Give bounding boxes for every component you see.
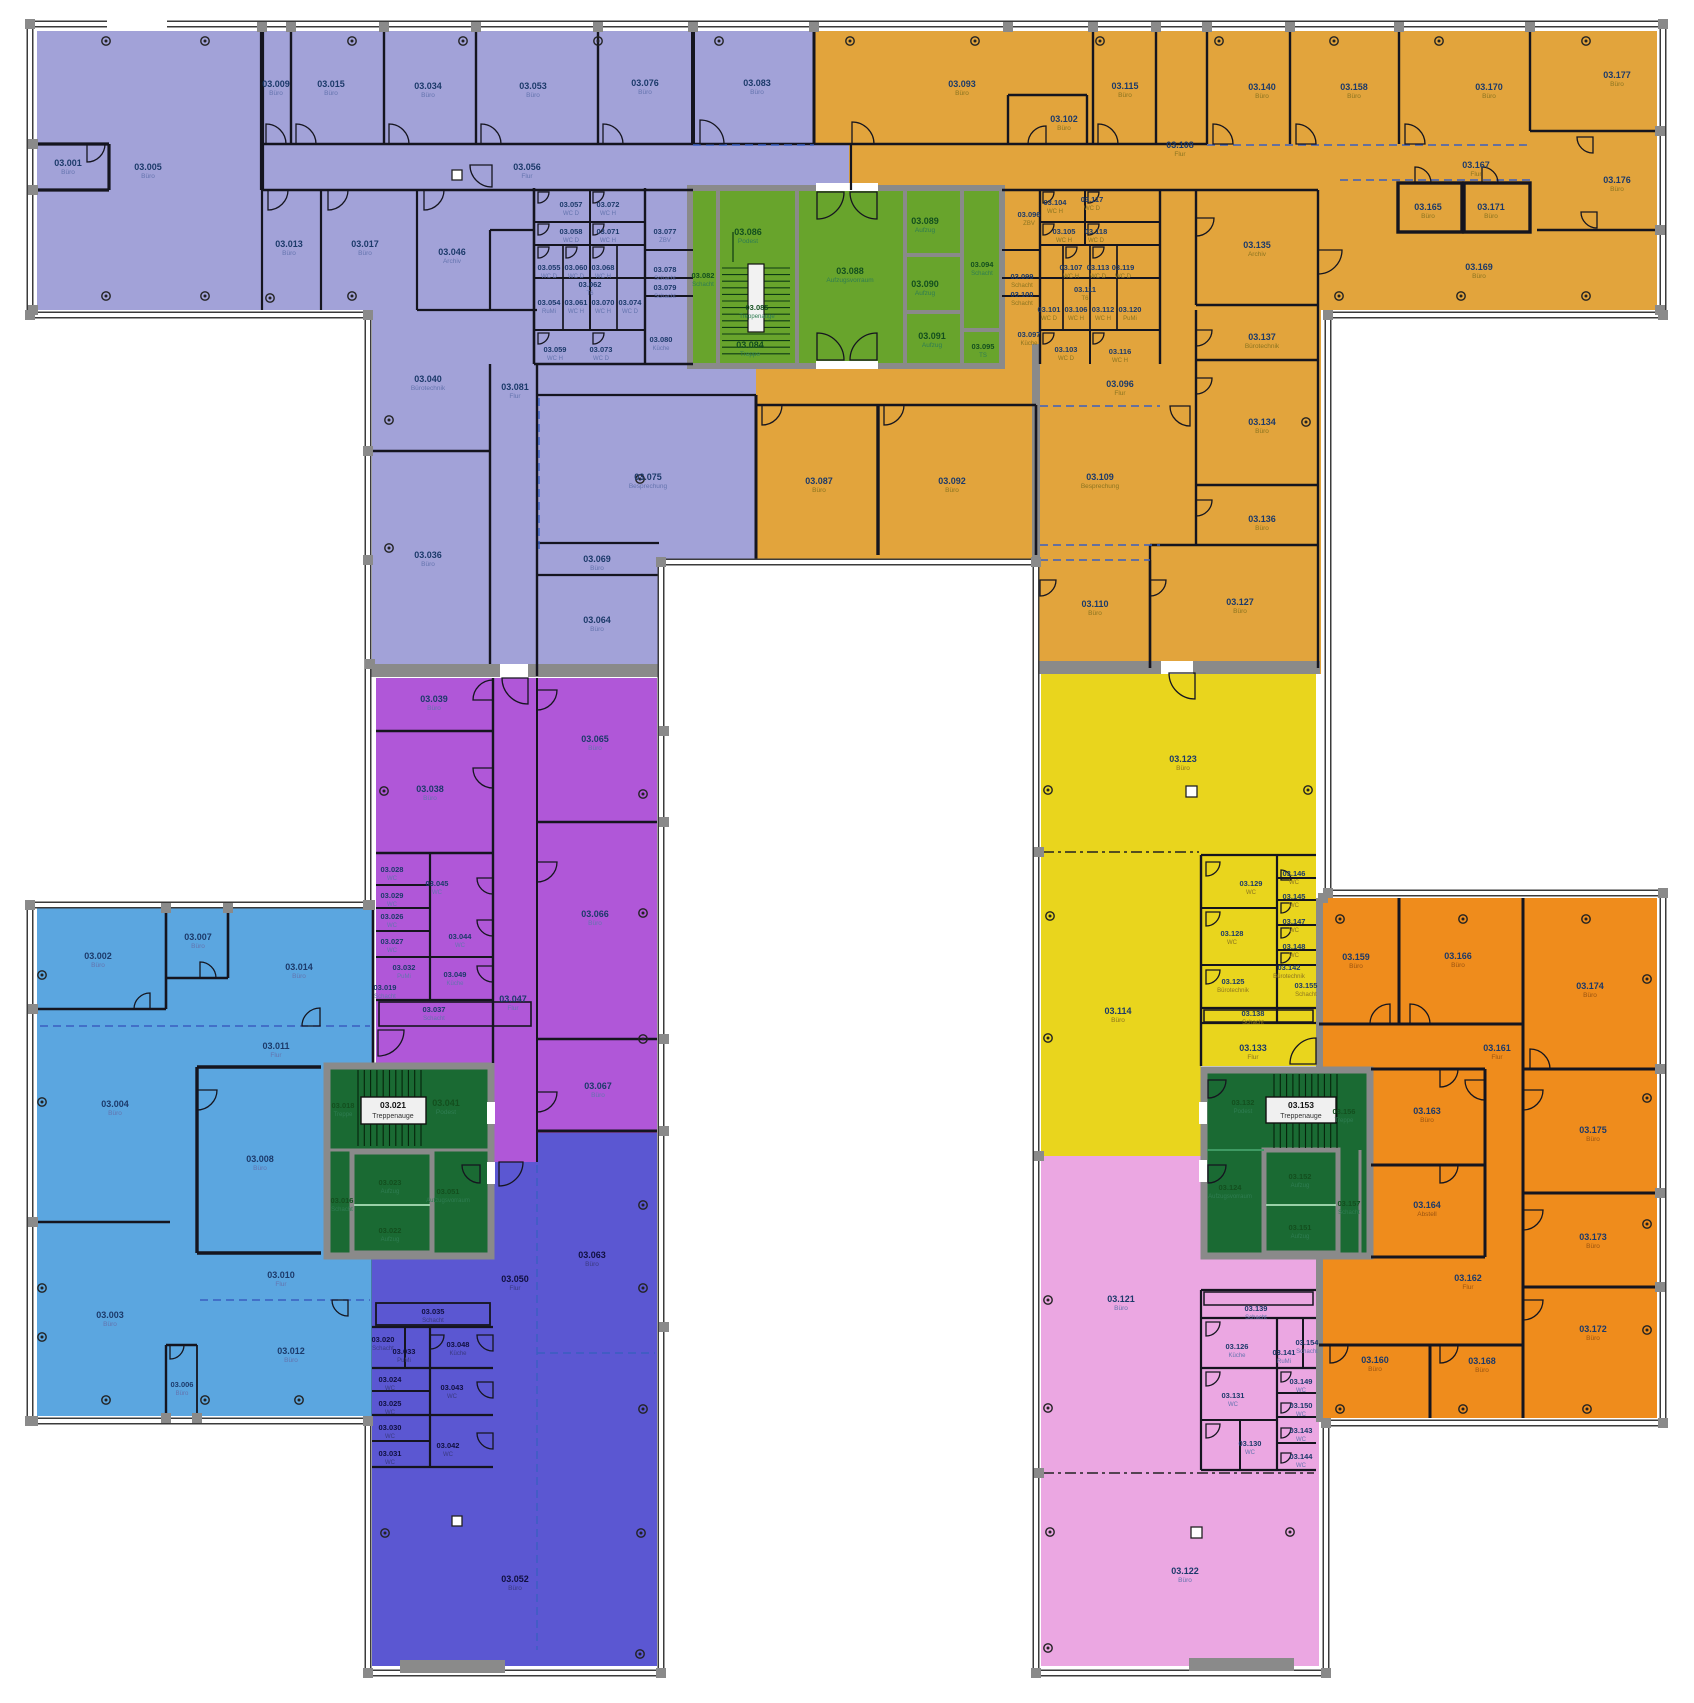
- svg-text:Schacht: Schacht: [1011, 301, 1033, 307]
- svg-text:Aufzug: Aufzug: [922, 342, 943, 349]
- svg-text:WC: WC: [1246, 890, 1257, 896]
- svg-text:Büro: Büro: [1178, 1577, 1192, 1584]
- svg-text:Büro: Büro: [526, 92, 540, 99]
- svg-text:WC H: WC H: [547, 356, 563, 362]
- svg-text:03.086: 03.086: [734, 227, 762, 237]
- svg-text:Büro: Büro: [955, 90, 969, 97]
- svg-text:Büro: Büro: [1482, 93, 1496, 100]
- svg-text:03.075: 03.075: [634, 472, 662, 482]
- svg-text:03.057: 03.057: [560, 200, 583, 209]
- svg-text:Büro: Büro: [1421, 213, 1435, 220]
- svg-text:WC D: WC D: [1041, 316, 1058, 322]
- svg-text:03.061: 03.061: [565, 298, 588, 307]
- svg-text:03.050: 03.050: [501, 1274, 529, 1284]
- svg-text:ZBV: ZBV: [1023, 221, 1035, 227]
- svg-text:Bürotechnik: Bürotechnik: [1217, 988, 1250, 994]
- svg-text:WC D: WC D: [541, 274, 558, 280]
- svg-text:RuMi: RuMi: [542, 309, 556, 315]
- svg-text:Flur: Flur: [521, 173, 533, 180]
- svg-text:03.115: 03.115: [1111, 81, 1138, 91]
- svg-text:03.126: 03.126: [1226, 1342, 1249, 1351]
- svg-text:WC H: WC H: [1068, 316, 1084, 322]
- svg-text:03.048: 03.048: [447, 1340, 470, 1349]
- svg-text:WC: WC: [387, 948, 398, 954]
- svg-text:Archiv: Archiv: [443, 258, 462, 265]
- svg-text:Büro: Büro: [141, 173, 155, 180]
- svg-text:03.100: 03.100: [1011, 290, 1034, 299]
- svg-text:Aufzug: Aufzug: [1291, 1234, 1310, 1240]
- svg-text:Büro: Büro: [1472, 273, 1486, 280]
- svg-text:Büro: Büro: [585, 1261, 599, 1268]
- svg-text:Büro: Büro: [61, 169, 75, 176]
- svg-text:Büro: Büro: [1233, 608, 1247, 615]
- svg-text:Büro: Büro: [588, 745, 602, 752]
- svg-text:03.174: 03.174: [1576, 981, 1604, 991]
- svg-text:03.169: 03.169: [1465, 262, 1493, 272]
- svg-text:03.084: 03.084: [736, 340, 764, 350]
- svg-text:Abstell: Abstell: [1417, 1211, 1437, 1218]
- svg-text:03.114: 03.114: [1104, 1006, 1131, 1016]
- svg-text:03.096: 03.096: [1018, 210, 1041, 219]
- svg-text:03.139: 03.139: [1245, 1304, 1268, 1313]
- svg-text:03.101: 03.101: [1038, 305, 1061, 314]
- svg-text:Flur: Flur: [275, 1281, 287, 1288]
- svg-text:WC H: WC H: [1063, 274, 1079, 280]
- svg-text:WC H: WC H: [1047, 209, 1063, 215]
- svg-text:RuMi: RuMi: [1277, 1359, 1291, 1365]
- svg-text:Küche: Küche: [446, 981, 464, 987]
- svg-text:03.023: 03.023: [379, 1178, 402, 1187]
- svg-text:03.026: 03.026: [381, 912, 404, 921]
- svg-text:03.129: 03.129: [1240, 879, 1263, 888]
- svg-text:WC D: WC D: [1084, 206, 1101, 212]
- svg-text:03.177: 03.177: [1603, 70, 1631, 80]
- svg-text:03.077: 03.077: [654, 227, 677, 236]
- svg-text:Büro: Büro: [945, 487, 959, 494]
- svg-text:WC D: WC D: [563, 211, 580, 217]
- svg-text:03.028: 03.028: [381, 865, 404, 874]
- svg-text:Büro: Büro: [282, 250, 296, 257]
- svg-text:03.161: 03.161: [1483, 1043, 1511, 1053]
- svg-text:03.053: 03.053: [519, 81, 547, 91]
- svg-text:03.145: 03.145: [1283, 892, 1306, 901]
- svg-text:03.065: 03.065: [581, 734, 609, 744]
- svg-text:T6: T6: [586, 291, 594, 297]
- svg-text:WC: WC: [455, 943, 466, 949]
- svg-text:03.153: 03.153: [1288, 1100, 1314, 1110]
- svg-text:PuMi: PuMi: [397, 974, 411, 980]
- svg-text:03.018: 03.018: [332, 1101, 355, 1110]
- svg-text:03.002: 03.002: [84, 951, 112, 961]
- svg-text:WC D: WC D: [1058, 356, 1075, 362]
- svg-text:03.158: 03.158: [1340, 82, 1368, 92]
- svg-text:WC: WC: [1228, 1402, 1239, 1408]
- svg-text:Büro: Büro: [812, 487, 826, 494]
- svg-text:Büro: Büro: [591, 1092, 605, 1099]
- svg-text:03.060: 03.060: [565, 263, 588, 272]
- svg-text:03.117: 03.117: [1081, 195, 1104, 204]
- svg-text:03.133: 03.133: [1239, 1043, 1267, 1053]
- svg-text:WC H: WC H: [568, 309, 584, 315]
- svg-text:03.014: 03.014: [285, 962, 313, 972]
- svg-text:Büro: Büro: [191, 943, 205, 950]
- svg-text:03.034: 03.034: [414, 81, 442, 91]
- svg-text:03.024: 03.024: [379, 1375, 403, 1384]
- svg-text:Flur: Flur: [507, 1005, 519, 1012]
- svg-text:03.113: 03.113: [1087, 263, 1110, 272]
- svg-text:Schacht: Schacht: [1011, 283, 1033, 289]
- svg-text:Treppenauge: Treppenauge: [1280, 1113, 1321, 1120]
- svg-text:03.064: 03.064: [583, 615, 611, 625]
- svg-text:03.070: 03.070: [592, 298, 615, 307]
- svg-text:WC H: WC H: [1095, 316, 1111, 322]
- svg-text:Büro: Büro: [590, 626, 604, 633]
- svg-text:03.096: 03.096: [1106, 379, 1134, 389]
- svg-text:03.123: 03.123: [1169, 754, 1197, 764]
- svg-text:03.135: 03.135: [1243, 240, 1271, 250]
- svg-text:03.015: 03.015: [317, 79, 345, 89]
- svg-text:03.031: 03.031: [379, 1449, 402, 1458]
- svg-text:03.091: 03.091: [918, 331, 946, 341]
- svg-text:Büro: Büro: [427, 705, 441, 712]
- svg-text:03.020: 03.020: [372, 1335, 395, 1344]
- svg-text:Büro: Büro: [1475, 1367, 1489, 1374]
- svg-text:Büro: Büro: [1255, 525, 1269, 532]
- svg-text:03.038: 03.038: [416, 784, 444, 794]
- svg-text:03.120: 03.120: [1119, 305, 1142, 314]
- svg-text:03.004: 03.004: [101, 1099, 129, 1109]
- svg-text:03.150: 03.150: [1290, 1401, 1313, 1410]
- svg-text:03.021: 03.021: [380, 1100, 406, 1110]
- svg-text:Treppe: Treppe: [1335, 1118, 1354, 1124]
- svg-text:WC: WC: [432, 890, 443, 896]
- svg-text:03.094: 03.094: [971, 260, 995, 269]
- svg-text:03.125: 03.125: [1222, 977, 1245, 986]
- svg-text:Büro: Büro: [91, 962, 105, 969]
- svg-text:03.003: 03.003: [96, 1310, 124, 1320]
- svg-text:Schacht: Schacht: [423, 1016, 445, 1022]
- svg-text:WC: WC: [1289, 880, 1300, 886]
- svg-text:Büro: Büro: [1114, 1305, 1128, 1312]
- svg-text:03.116: 03.116: [1109, 347, 1132, 356]
- svg-text:ZBV: ZBV: [659, 238, 671, 244]
- svg-text:03.103: 03.103: [1055, 345, 1078, 354]
- svg-text:03.136: 03.136: [1248, 514, 1276, 524]
- svg-text:Schacht: Schacht: [1245, 1315, 1267, 1321]
- svg-text:Schacht: Schacht: [422, 1318, 444, 1324]
- svg-text:03.006: 03.006: [171, 1380, 194, 1389]
- svg-text:03.172: 03.172: [1579, 1324, 1607, 1334]
- svg-text:Besprechung: Besprechung: [1081, 483, 1120, 490]
- svg-text:Bürotechnik: Bürotechnik: [411, 385, 446, 392]
- svg-text:03.167: 03.167: [1462, 160, 1490, 170]
- svg-text:Schacht: Schacht: [971, 271, 993, 277]
- svg-text:Flur: Flur: [1247, 1054, 1259, 1061]
- svg-text:Büro: Büro: [1583, 992, 1597, 999]
- svg-text:03.176: 03.176: [1603, 175, 1631, 185]
- svg-text:03.088: 03.088: [836, 266, 864, 276]
- svg-text:WC: WC: [387, 902, 398, 908]
- svg-text:Büro: Büro: [324, 90, 338, 97]
- svg-text:03.035: 03.035: [422, 1307, 445, 1316]
- svg-text:Aufzug: Aufzug: [915, 227, 936, 234]
- svg-text:WC H: WC H: [1056, 238, 1072, 244]
- svg-text:03.085: 03.085: [746, 303, 769, 312]
- svg-text:Treppe: Treppe: [740, 351, 761, 358]
- svg-text:03.170: 03.170: [1475, 82, 1503, 92]
- svg-text:Büro: Büro: [750, 89, 764, 96]
- svg-text:Büro: Büro: [638, 89, 652, 96]
- svg-text:Flur: Flur: [1491, 1054, 1503, 1061]
- svg-text:03.063: 03.063: [578, 1250, 606, 1260]
- svg-text:03.163: 03.163: [1413, 1106, 1441, 1116]
- svg-text:03.102: 03.102: [1050, 114, 1078, 124]
- svg-text:Schacht: Schacht: [1296, 1349, 1318, 1355]
- svg-text:Aufzugsvorraum: Aufzugsvorraum: [826, 277, 873, 284]
- svg-text:03.012: 03.012: [277, 1346, 305, 1356]
- svg-text:03.156: 03.156: [1333, 1107, 1356, 1116]
- svg-text:03.036: 03.036: [414, 550, 442, 560]
- svg-text:03.109: 03.109: [1086, 472, 1114, 482]
- svg-text:WC: WC: [385, 1386, 396, 1392]
- svg-text:WC: WC: [387, 923, 398, 929]
- svg-text:PuMi: PuMi: [397, 1358, 411, 1364]
- svg-text:03.059: 03.059: [544, 345, 567, 354]
- svg-text:Büro: Büro: [423, 795, 437, 802]
- svg-text:03.173: 03.173: [1579, 1232, 1607, 1242]
- svg-text:Schacht: Schacht: [654, 276, 676, 282]
- svg-text:Büro: Büro: [253, 1165, 267, 1172]
- svg-text:Treppenauge: Treppenauge: [372, 1113, 413, 1120]
- svg-text:WC H: WC H: [595, 309, 611, 315]
- svg-text:WC D: WC D: [1088, 238, 1105, 244]
- svg-text:Schacht: Schacht: [1295, 992, 1317, 998]
- svg-text:03.155: 03.155: [1295, 981, 1318, 990]
- svg-text:Büro: Büro: [1057, 125, 1071, 132]
- svg-text:Küche: Küche: [652, 346, 670, 352]
- svg-text:03.131: 03.131: [1222, 1391, 1245, 1400]
- svg-text:Büro: Büro: [176, 1391, 189, 1397]
- svg-text:03.007: 03.007: [184, 932, 212, 942]
- svg-text:WC D: WC D: [1090, 274, 1107, 280]
- svg-text:03.140: 03.140: [1248, 82, 1276, 92]
- svg-text:Küche: Küche: [1228, 1353, 1246, 1359]
- svg-text:WC: WC: [1289, 928, 1300, 934]
- svg-text:Büro: Büro: [1586, 1335, 1600, 1342]
- svg-text:Büro: Büro: [1610, 186, 1624, 193]
- svg-text:03.146: 03.146: [1283, 869, 1306, 878]
- svg-text:03.110: 03.110: [1081, 599, 1108, 609]
- svg-text:Flur: Flur: [1174, 151, 1186, 158]
- svg-text:WC: WC: [385, 1460, 396, 1466]
- svg-text:Archiv: Archiv: [1248, 251, 1267, 258]
- svg-text:WC D: WC D: [1115, 274, 1132, 280]
- svg-text:03.111: 03.111: [1074, 285, 1096, 294]
- svg-text:03.033: 03.033: [393, 1347, 416, 1356]
- svg-text:WC: WC: [1245, 1450, 1256, 1456]
- svg-text:03.157: 03.157: [1338, 1199, 1361, 1208]
- svg-text:03.142: 03.142: [1278, 963, 1301, 972]
- svg-text:Büro: Büro: [421, 92, 435, 99]
- svg-text:Flur: Flur: [1470, 171, 1482, 178]
- svg-text:03.147: 03.147: [1283, 917, 1306, 926]
- svg-text:Schacht: Schacht: [1338, 1210, 1360, 1216]
- svg-text:03.112: 03.112: [1092, 305, 1115, 314]
- svg-text:03.080: 03.080: [650, 335, 673, 344]
- svg-text:03.005: 03.005: [134, 162, 162, 172]
- svg-text:03.106: 03.106: [1065, 305, 1088, 314]
- svg-text:Büro: Büro: [284, 1357, 298, 1364]
- svg-text:03.079: 03.079: [654, 283, 677, 292]
- svg-text:03.127: 03.127: [1226, 597, 1254, 607]
- svg-text:03.119: 03.119: [1112, 263, 1135, 272]
- svg-text:Besprechung: Besprechung: [629, 483, 668, 490]
- svg-text:03.076: 03.076: [631, 78, 659, 88]
- svg-text:Podest: Podest: [436, 1109, 456, 1116]
- svg-text:WC D: WC D: [593, 356, 610, 362]
- svg-text:WC: WC: [443, 1452, 454, 1458]
- svg-text:03.168: 03.168: [1468, 1356, 1496, 1366]
- svg-text:03.160: 03.160: [1361, 1355, 1389, 1365]
- svg-text:WC D: WC D: [622, 309, 639, 315]
- svg-text:03.148: 03.148: [1283, 942, 1306, 951]
- svg-text:03.027: 03.027: [381, 937, 404, 946]
- svg-text:WC: WC: [387, 876, 398, 882]
- svg-text:03.089: 03.089: [911, 216, 939, 226]
- svg-text:03.149: 03.149: [1290, 1377, 1313, 1386]
- svg-text:03.159: 03.159: [1342, 952, 1370, 962]
- svg-text:03.055: 03.055: [538, 263, 561, 272]
- svg-text:Bürotechnik: Bürotechnik: [1245, 343, 1280, 350]
- svg-text:03.097: 03.097: [1018, 330, 1041, 339]
- svg-text:Podest: Podest: [738, 238, 758, 245]
- svg-text:03.151: 03.151: [1289, 1223, 1312, 1232]
- svg-text:03.069: 03.069: [583, 554, 611, 564]
- svg-text:Flur: Flur: [1462, 1284, 1474, 1291]
- svg-text:03.037: 03.037: [423, 1005, 446, 1014]
- svg-text:03.087: 03.087: [805, 476, 833, 486]
- svg-text:03.066: 03.066: [581, 909, 609, 919]
- svg-text:03.044: 03.044: [449, 932, 473, 941]
- svg-text:Aufzug: Aufzug: [1291, 1183, 1310, 1189]
- svg-text:Büro: Büro: [1255, 93, 1269, 100]
- svg-text:03.081: 03.081: [501, 382, 529, 392]
- svg-text:03.093: 03.093: [948, 79, 976, 89]
- svg-text:03.052: 03.052: [501, 1574, 529, 1584]
- svg-text:03.056: 03.056: [513, 162, 541, 172]
- svg-text:Büro: Büro: [1484, 213, 1498, 220]
- svg-text:03.074: 03.074: [619, 298, 643, 307]
- svg-text:Büro: Büro: [508, 1585, 522, 1592]
- svg-text:03.032: 03.032: [393, 963, 416, 972]
- svg-text:03.043: 03.043: [441, 1383, 464, 1392]
- svg-text:Schacht: Schacht: [692, 282, 714, 288]
- svg-text:03.105: 03.105: [1053, 227, 1076, 236]
- svg-text:Büro: Büro: [103, 1321, 117, 1328]
- svg-text:03.124: 03.124: [1219, 1183, 1243, 1192]
- svg-text:03.030: 03.030: [379, 1423, 402, 1432]
- svg-text:Büro: Büro: [269, 90, 283, 97]
- svg-text:03.092: 03.092: [938, 476, 966, 486]
- svg-text:03.058: 03.058: [560, 227, 583, 236]
- svg-text:03.152: 03.152: [1289, 1172, 1312, 1181]
- svg-text:Büro: Büro: [1368, 1366, 1382, 1373]
- svg-text:WC: WC: [447, 1394, 458, 1400]
- svg-text:WC: WC: [385, 1434, 396, 1440]
- svg-text:WC: WC: [1289, 953, 1300, 959]
- svg-text:TS: TS: [979, 353, 987, 359]
- svg-text:03.010: 03.010: [267, 1270, 295, 1280]
- svg-text:03.134: 03.134: [1248, 417, 1276, 427]
- svg-text:Schacht: Schacht: [372, 1346, 394, 1352]
- svg-text:03.154: 03.154: [1296, 1338, 1320, 1347]
- svg-text:Aufzugsvorraum: Aufzugsvorraum: [1208, 1194, 1252, 1200]
- svg-text:03.107: 03.107: [1060, 263, 1083, 272]
- svg-text:03.040: 03.040: [414, 374, 442, 384]
- svg-text:Schacht: Schacht: [1242, 1020, 1264, 1026]
- svg-text:WC H: WC H: [1112, 358, 1128, 364]
- svg-text:Büro: Büro: [1586, 1243, 1600, 1250]
- svg-text:Bürotechnik: Bürotechnik: [1273, 974, 1306, 980]
- svg-text:03.082: 03.082: [692, 271, 715, 280]
- svg-text:WC: WC: [1289, 903, 1300, 909]
- svg-text:Büro: Büro: [1255, 428, 1269, 435]
- svg-text:Flur: Flur: [509, 1285, 521, 1292]
- svg-text:Büro: Büro: [358, 250, 372, 257]
- svg-text:03.016: 03.016: [331, 1196, 354, 1205]
- svg-text:03.072: 03.072: [597, 200, 620, 209]
- svg-text:WC: WC: [385, 1410, 396, 1416]
- svg-text:03.165: 03.165: [1414, 202, 1442, 212]
- svg-text:03.137: 03.137: [1248, 332, 1276, 342]
- svg-text:03.138: 03.138: [1242, 1009, 1265, 1018]
- svg-text:03.019: 03.019: [374, 983, 397, 992]
- svg-text:03.141: 03.141: [1273, 1348, 1296, 1357]
- svg-text:Aufzug: Aufzug: [381, 1237, 400, 1243]
- svg-text:Flur: Flur: [509, 393, 521, 400]
- svg-text:Aufzug: Aufzug: [381, 1189, 400, 1195]
- svg-text:03.118: 03.118: [1085, 227, 1108, 236]
- svg-text:03.039: 03.039: [420, 694, 448, 704]
- svg-text:Büro: Büro: [588, 920, 602, 927]
- svg-text:03.073: 03.073: [590, 345, 613, 354]
- svg-text:Aufzug: Aufzug: [915, 290, 936, 297]
- svg-text:Flur: Flur: [1114, 390, 1126, 397]
- svg-text:T6: T6: [1081, 296, 1089, 302]
- svg-text:WC: WC: [1296, 1412, 1307, 1418]
- svg-text:03.011: 03.011: [262, 1041, 289, 1051]
- svg-text:03.144: 03.144: [1290, 1452, 1314, 1461]
- svg-text:Büro: Büro: [1451, 962, 1465, 969]
- svg-text:03.067: 03.067: [584, 1081, 612, 1091]
- svg-text:03.078: 03.078: [654, 265, 677, 274]
- svg-text:03.068: 03.068: [592, 263, 615, 272]
- svg-text:03.025: 03.025: [379, 1399, 402, 1408]
- svg-text:Büro: Büro: [108, 1110, 122, 1117]
- svg-text:WC D: WC D: [563, 238, 580, 244]
- svg-text:03.054: 03.054: [538, 298, 562, 307]
- svg-text:Büro: Büro: [1347, 93, 1361, 100]
- svg-text:03.128: 03.128: [1221, 929, 1244, 938]
- svg-text:Büro: Büro: [1111, 1017, 1125, 1024]
- svg-text:Büro: Büro: [1088, 610, 1102, 617]
- svg-text:03.047: 03.047: [499, 994, 527, 1004]
- svg-text:03.130: 03.130: [1239, 1439, 1262, 1448]
- svg-text:WC H: WC H: [600, 211, 616, 217]
- svg-text:03.090: 03.090: [911, 279, 939, 289]
- svg-text:03.013: 03.013: [275, 239, 303, 249]
- svg-text:Büro: Büro: [1420, 1117, 1434, 1124]
